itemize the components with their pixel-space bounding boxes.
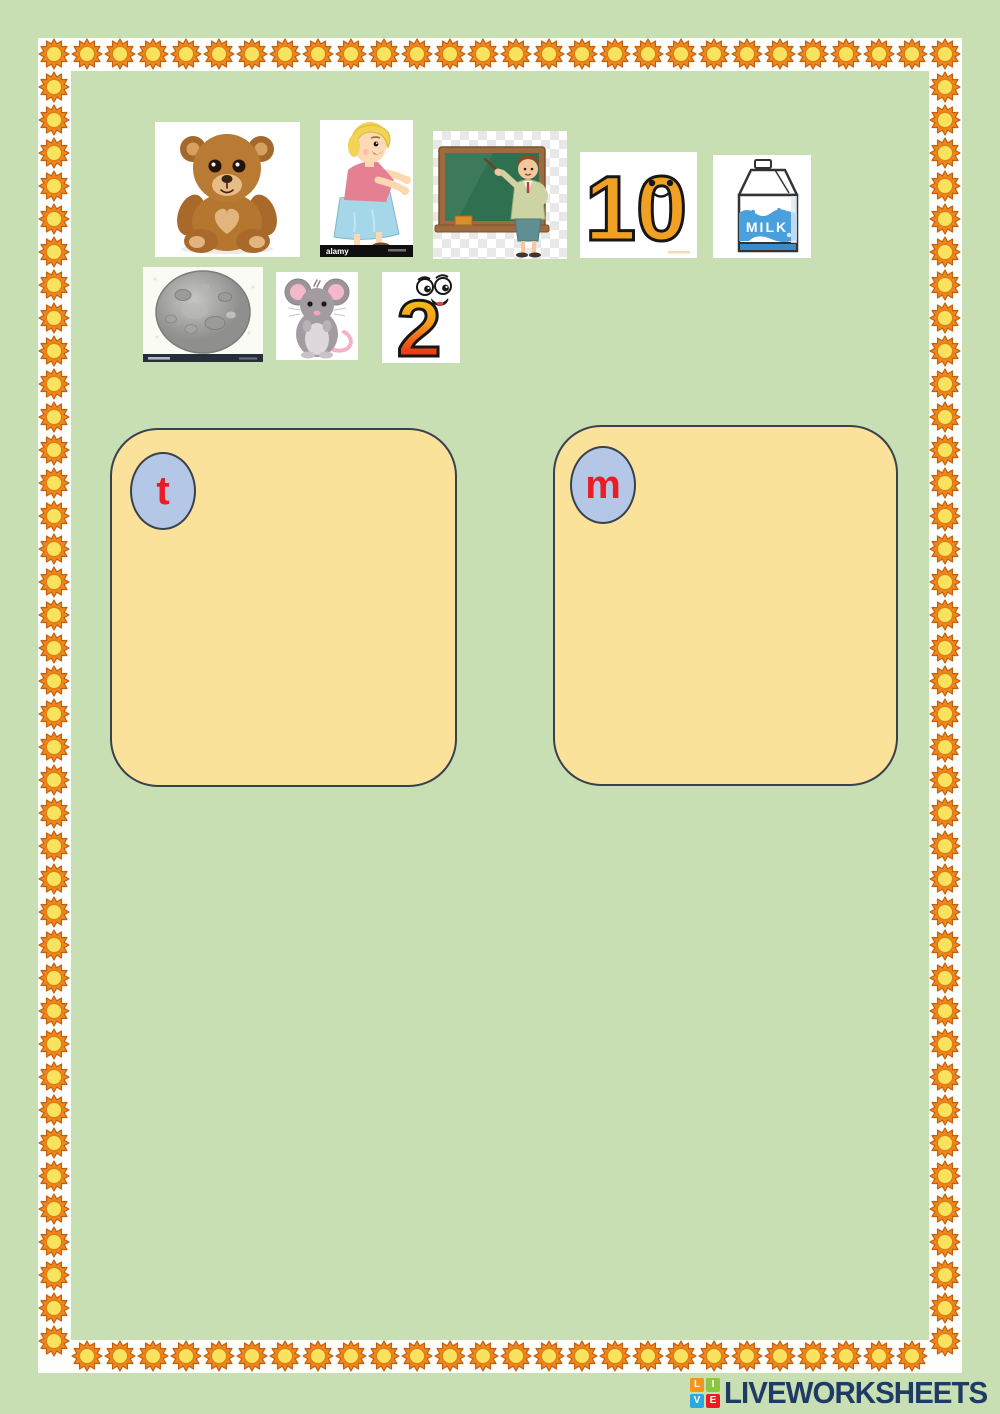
sun-icon [929, 170, 961, 202]
sun-icon [269, 1340, 301, 1372]
brand-text: LIVEWORKSHEETS [724, 1375, 987, 1411]
sun-icon [929, 1226, 961, 1258]
sun-icon [38, 1028, 70, 1060]
sun-icon [104, 1340, 136, 1372]
sun-icon [797, 1340, 829, 1372]
sun-icon [929, 1325, 961, 1357]
worksheet-page: alamy [0, 0, 1000, 1414]
border-strip-right [929, 38, 962, 1373]
sun-icon [929, 137, 961, 169]
sun-icon [335, 1340, 367, 1372]
sun-icon [38, 236, 70, 268]
number-ten-text: 10 [585, 158, 687, 258]
milk-carton-image: MILK [713, 155, 811, 258]
sun-icon [38, 1160, 70, 1192]
number-ten-image: 10 [580, 152, 697, 258]
sun-icon [698, 1340, 730, 1372]
logo-square-v: V [690, 1394, 704, 1408]
sun-icon [71, 1340, 103, 1372]
sun-icon [38, 731, 70, 763]
sun-icon [467, 1340, 499, 1372]
sun-icon [929, 599, 961, 631]
drop-box-t[interactable]: t [110, 428, 457, 787]
number-two-image: 2 [382, 272, 460, 363]
picture-card-number-ten[interactable]: 10 [580, 152, 697, 258]
sun-icon [137, 38, 169, 70]
sun-icon [38, 467, 70, 499]
sun-icon [203, 38, 235, 70]
sun-icon [731, 1340, 763, 1372]
sun-icon [38, 368, 70, 400]
sun-icon [434, 38, 466, 70]
sun-icon [38, 1259, 70, 1291]
sun-icon [38, 599, 70, 631]
sun-icon [38, 533, 70, 565]
sun-icon [764, 38, 796, 70]
sun-icon [38, 863, 70, 895]
sun-icon [104, 38, 136, 70]
sun-icon [38, 632, 70, 664]
sun-icon [863, 38, 895, 70]
sun-icon [929, 269, 961, 301]
sun-icon [929, 1193, 961, 1225]
sun-icon [38, 1127, 70, 1159]
sun-icon [38, 1226, 70, 1258]
sun-icon [335, 38, 367, 70]
picture-card-milk[interactable]: MILK [713, 155, 811, 258]
sun-icon [929, 71, 961, 103]
sun-icon [170, 1340, 202, 1372]
sun-icon [368, 1340, 400, 1372]
sun-icon [599, 1340, 631, 1372]
picture-card-mum[interactable]: alamy [320, 120, 413, 257]
sun-icon [71, 38, 103, 70]
border-strip-top [38, 38, 962, 71]
sun-icon [302, 1340, 334, 1372]
sun-icon [38, 929, 70, 961]
sun-icon [137, 1340, 169, 1372]
sun-icon [38, 1193, 70, 1225]
sun-icon [38, 1292, 70, 1324]
sun-icon [38, 566, 70, 598]
sun-icon [929, 566, 961, 598]
sun-icon [929, 533, 961, 565]
picture-card-teacher[interactable] [433, 131, 567, 259]
sun-icon [533, 1340, 565, 1372]
sun-icon [38, 1094, 70, 1126]
sun-icon [38, 764, 70, 796]
sun-icon [929, 203, 961, 235]
sun-icon [38, 71, 70, 103]
drop-box-m[interactable]: m [553, 425, 898, 786]
sun-icon [38, 38, 70, 70]
sun-icon [170, 38, 202, 70]
sun-icon [599, 38, 631, 70]
sun-icon [896, 38, 928, 70]
letter-badge-m: m [570, 446, 636, 524]
logo-square-i: I [706, 1378, 720, 1392]
sun-icon [665, 38, 697, 70]
sun-icon [929, 401, 961, 433]
sun-icon [896, 1340, 928, 1372]
sun-icon [863, 1340, 895, 1372]
sun-icon [203, 1340, 235, 1372]
sun-icon [929, 368, 961, 400]
sun-icon [566, 1340, 598, 1372]
sun-icon [38, 995, 70, 1027]
sun-icon [830, 1340, 862, 1372]
picture-card-teddy-bear[interactable] [155, 122, 300, 257]
sun-icon [38, 170, 70, 202]
picture-card-number-two[interactable]: 2 [382, 272, 460, 363]
sun-icon [38, 830, 70, 862]
sun-icon [500, 38, 532, 70]
milk-label-text: MILK [746, 219, 788, 235]
sun-icon [764, 1340, 796, 1372]
sun-icon [929, 665, 961, 697]
sun-icon [929, 500, 961, 532]
letter-t: t [156, 471, 169, 511]
sun-icon [929, 335, 961, 367]
sun-icon [38, 698, 70, 730]
sun-icon [929, 302, 961, 334]
border-strip-bottom [38, 1340, 962, 1373]
sun-icon [929, 1094, 961, 1126]
sun-icon [38, 962, 70, 994]
sun-icon [929, 731, 961, 763]
sun-icon [38, 500, 70, 532]
number-two-text: 2 [397, 284, 442, 363]
sun-icon [632, 1340, 664, 1372]
sun-icon [368, 38, 400, 70]
sun-icon [38, 137, 70, 169]
sun-icon [401, 1340, 433, 1372]
sun-icon [467, 38, 499, 70]
sun-icon [302, 38, 334, 70]
sun-icon [929, 1160, 961, 1192]
liveworksheets-logo-squares: L I V E [690, 1378, 720, 1408]
sun-icon [566, 38, 598, 70]
sun-icon [929, 434, 961, 466]
sun-icon [434, 1340, 466, 1372]
border-strip-left [38, 38, 71, 1373]
sun-icon [929, 1028, 961, 1060]
sun-icon [698, 38, 730, 70]
sun-icon [929, 38, 961, 70]
sun-icon [38, 665, 70, 697]
picture-card-moon[interactable] [143, 267, 263, 362]
sun-icon [500, 1340, 532, 1372]
sun-icon [929, 863, 961, 895]
letter-badge-t: t [130, 452, 196, 530]
mouse-image [276, 272, 358, 360]
sun-icon [38, 1325, 70, 1357]
sun-icon [269, 38, 301, 70]
sun-icon [401, 38, 433, 70]
sun-icon [38, 434, 70, 466]
sun-icon [929, 236, 961, 268]
sun-icon [632, 38, 664, 70]
sun-icon [236, 1340, 268, 1372]
sun-icon [929, 830, 961, 862]
sun-icon [929, 797, 961, 829]
mum-image: alamy [320, 120, 413, 257]
sun-icon [38, 1061, 70, 1093]
sun-icon [38, 269, 70, 301]
sun-icon [38, 797, 70, 829]
sun-icon [929, 896, 961, 928]
picture-card-mouse[interactable] [276, 272, 358, 360]
letter-m: m [585, 465, 621, 505]
sun-icon [929, 929, 961, 961]
sun-icon [830, 38, 862, 70]
liveworksheets-logo[interactable]: L I V E LIVEWORKSHEETS [690, 1375, 1000, 1411]
sun-icon [38, 104, 70, 136]
sun-icon [929, 1127, 961, 1159]
sun-icon [929, 962, 961, 994]
teddy-bear-image [155, 122, 300, 257]
sun-icon [929, 632, 961, 664]
sun-icon [38, 203, 70, 235]
sun-icon [929, 1259, 961, 1291]
sun-icon [929, 104, 961, 136]
moon-image [143, 267, 263, 362]
teacher-image [433, 131, 567, 259]
sun-icon [929, 995, 961, 1027]
logo-square-l: L [690, 1378, 704, 1392]
sun-icon [665, 1340, 697, 1372]
sun-icon [929, 467, 961, 499]
sun-icon [929, 1061, 961, 1093]
sun-icon [731, 38, 763, 70]
sun-icon [38, 896, 70, 928]
logo-square-e: E [706, 1394, 720, 1408]
sun-icon [929, 764, 961, 796]
sun-icon [533, 38, 565, 70]
sun-icon [38, 401, 70, 433]
sun-icon [929, 698, 961, 730]
sun-icon [38, 335, 70, 367]
sun-icon [929, 1292, 961, 1324]
sun-icon [236, 38, 268, 70]
sun-icon [38, 302, 70, 334]
watermark-text: alamy [326, 247, 349, 256]
sun-icon [797, 38, 829, 70]
